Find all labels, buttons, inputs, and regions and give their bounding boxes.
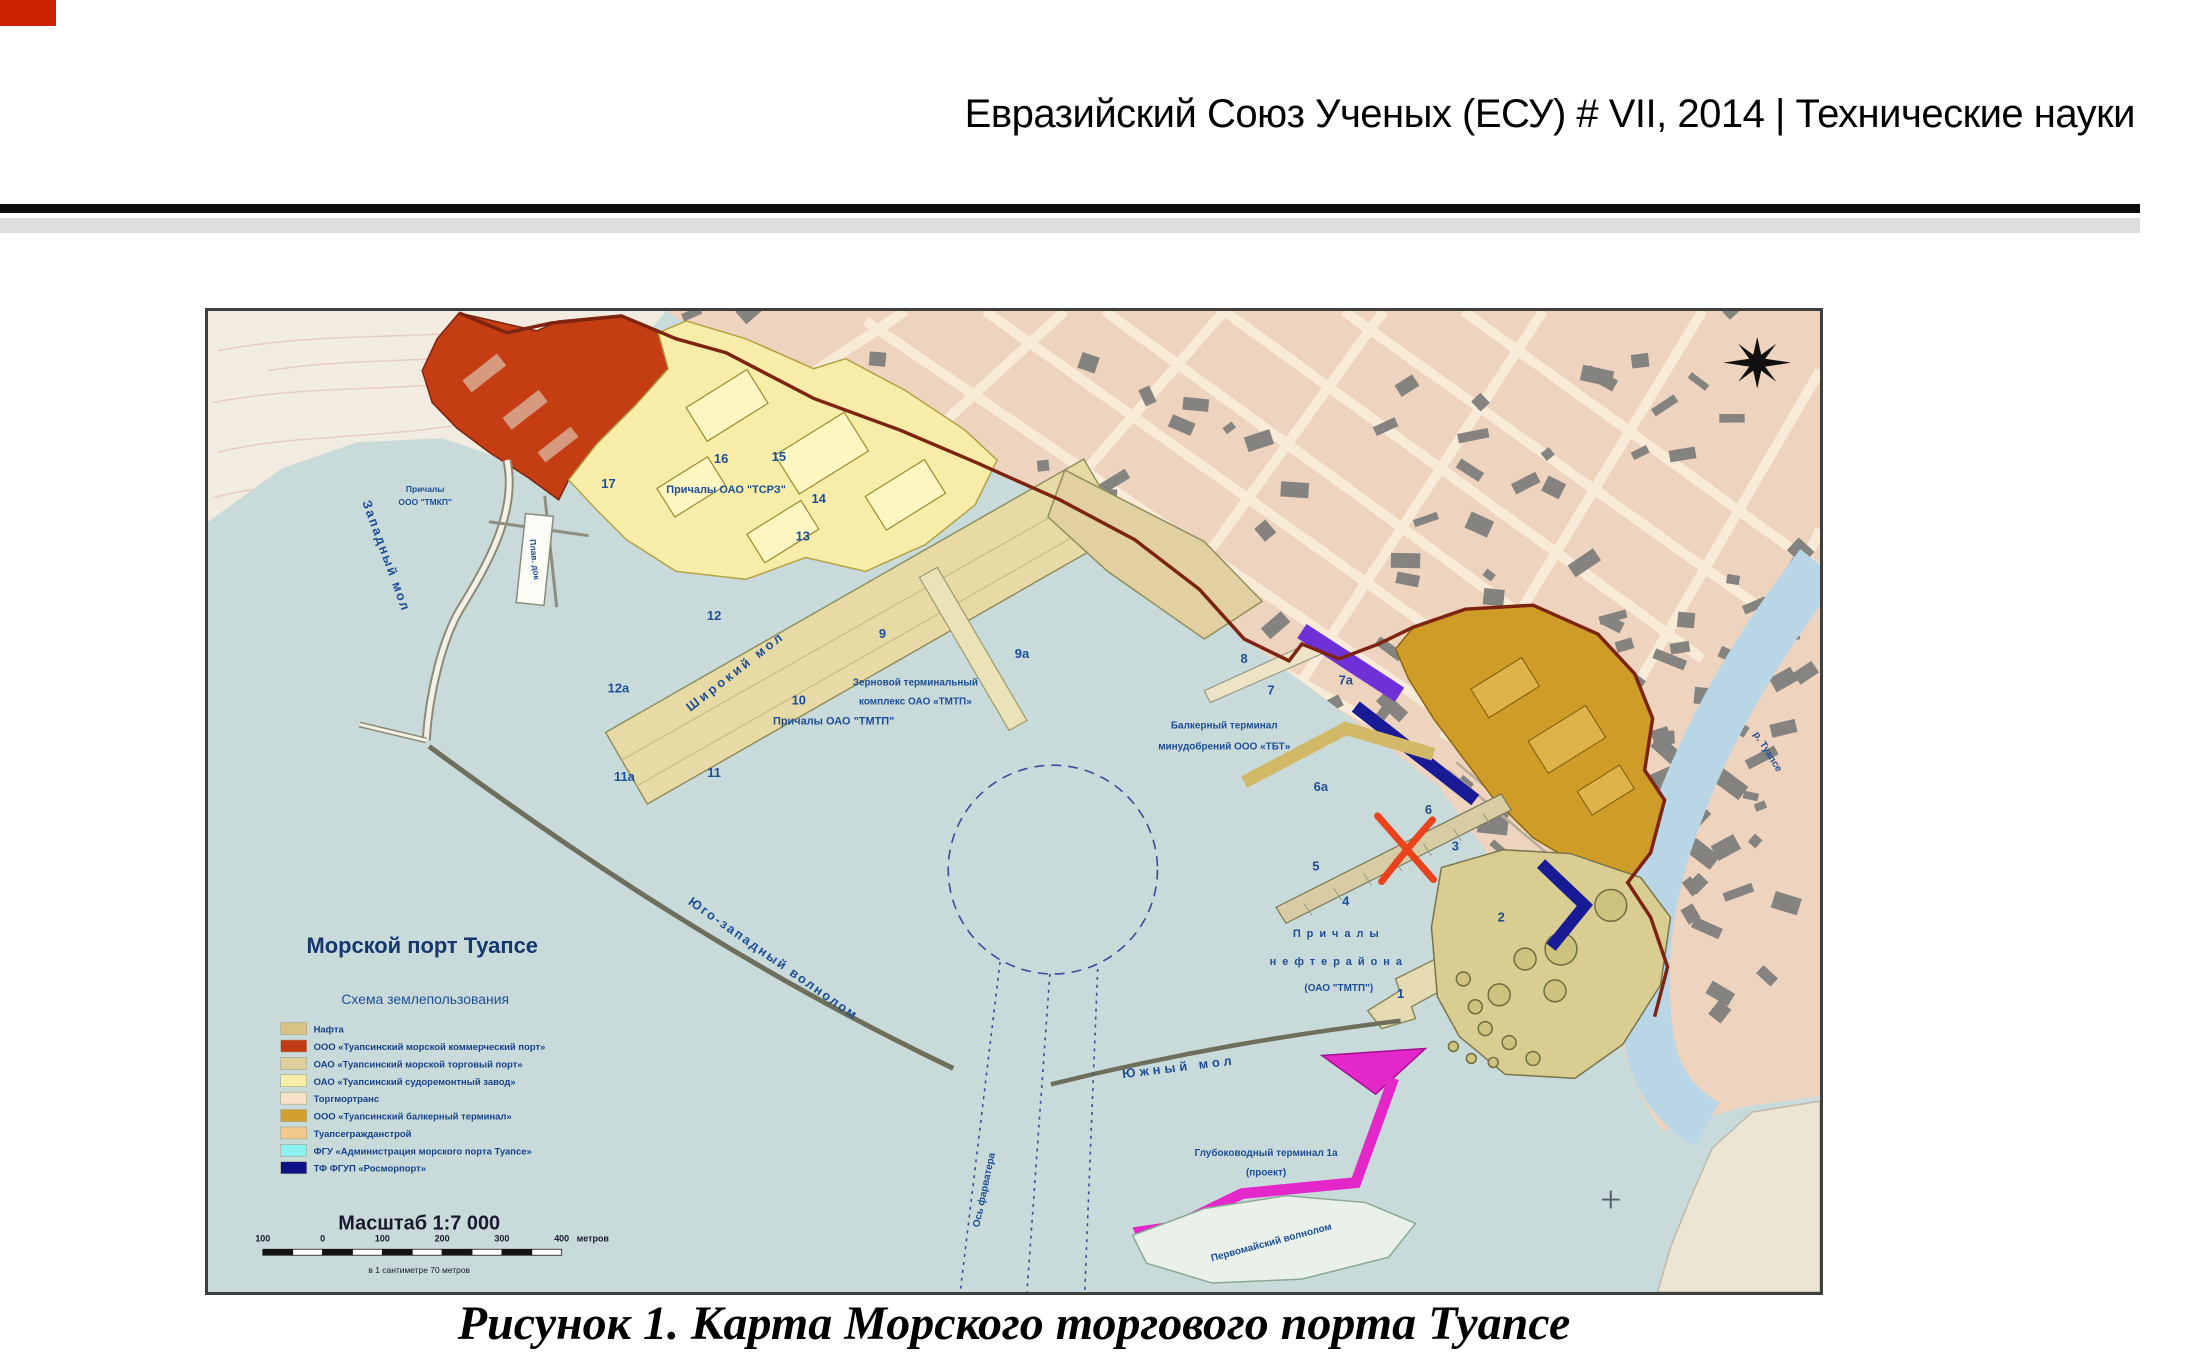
berth-label: 9 bbox=[879, 626, 886, 641]
figure-caption: Рисунок 1. Карта Морского торгового порт… bbox=[205, 1296, 1823, 1351]
berth-label: 16 bbox=[714, 451, 728, 466]
label-tmkp-berths-2: ООО "ТМКП" bbox=[398, 497, 452, 507]
berth-label: 10 bbox=[792, 693, 806, 708]
scale-tick: 100 bbox=[375, 1233, 390, 1243]
berth-label: 12 bbox=[707, 608, 721, 623]
berth-label: 7а bbox=[1339, 673, 1354, 688]
scan-artifact-red-mark bbox=[0, 0, 56, 26]
legend-label: ОАО «Туапсинский судоремонтный завод» bbox=[314, 1077, 516, 1088]
berth-label: 15 bbox=[772, 449, 786, 464]
berth-label: 1 bbox=[1397, 986, 1404, 1001]
legend-swatch bbox=[281, 1040, 307, 1052]
berth-label: 13 bbox=[796, 529, 810, 544]
berth-label: 11а bbox=[614, 769, 636, 784]
berth-label: 12а bbox=[608, 681, 630, 696]
legend-swatch bbox=[281, 1144, 307, 1156]
scale-bar bbox=[263, 1249, 562, 1255]
berth-label: 11 bbox=[707, 765, 721, 780]
label-tmtp-berths: Причалы ОАО "ТМТП" bbox=[773, 715, 894, 727]
label-tsrz-berths: Причалы ОАО "ТСРЗ" bbox=[666, 484, 786, 496]
scale-tick: 0 bbox=[320, 1233, 325, 1243]
legend-swatch bbox=[281, 1023, 307, 1035]
berth-label: 17 bbox=[601, 476, 615, 491]
legend-title: Морской порт Туапсе bbox=[306, 933, 537, 958]
legend-subtitle: Схема землепользования bbox=[341, 991, 509, 1007]
berth-label: 9а bbox=[1015, 646, 1030, 661]
berth-label: 6а bbox=[1314, 779, 1329, 794]
legend-label: ТФ ФГУП «Росморпорт» bbox=[314, 1164, 426, 1175]
legend-swatch bbox=[281, 1162, 307, 1174]
label-bulker-terminal-1: Балкерный терминал bbox=[1171, 720, 1278, 731]
port-map: Западный мол Широкий мол Юго-западный во… bbox=[208, 311, 1820, 1292]
label-tmkp-berths-1: Причалы bbox=[406, 484, 445, 494]
header-rule-shadow bbox=[0, 218, 2140, 233]
berth-label: 6 bbox=[1425, 802, 1432, 817]
label-bulker-terminal-2: минудобрений ООО «ТБТ» bbox=[1158, 741, 1291, 752]
scale-tick: 200 bbox=[435, 1233, 450, 1243]
journal-header: Евразийский Союз Ученых (ЕСУ) # VII, 201… bbox=[965, 92, 2135, 137]
berth-label: 8 bbox=[1241, 651, 1248, 666]
label-oil-berths-1: Причалы bbox=[1293, 928, 1385, 940]
scale-tick: 100 bbox=[255, 1233, 270, 1243]
label-oil-berths-3: (ОАО "ТМТП") bbox=[1304, 983, 1373, 994]
legend-label: ОАО «Туапсинский морской торговый порт» bbox=[314, 1059, 523, 1070]
berth-label: 14 bbox=[812, 491, 827, 506]
label-deepwater-terminal-1: Глубоководный терминал 1а bbox=[1194, 1148, 1338, 1159]
port-map-figure: Западный мол Широкий мол Юго-западный во… bbox=[205, 308, 1823, 1295]
legend-label: Нафта bbox=[314, 1025, 345, 1036]
berth-label: 2 bbox=[1498, 909, 1505, 924]
legend-label: Туапсегражданстрой bbox=[314, 1129, 412, 1140]
label-grain-terminal-2: комплекс ОАО «ТМТП» bbox=[859, 697, 972, 708]
legend-label: ООО «Туапсинский балкерный терминал» bbox=[314, 1112, 512, 1123]
legend-swatch bbox=[281, 1110, 307, 1122]
legend-swatch bbox=[281, 1057, 307, 1069]
legend-label: Торгмортранс bbox=[314, 1094, 380, 1105]
scale-tick: 400 bbox=[554, 1233, 569, 1243]
label-oil-berths-2: нефтерайона bbox=[1270, 956, 1408, 968]
scale-note: в 1 сантиметре 70 метров bbox=[368, 1265, 470, 1275]
label-deepwater-terminal-2: (проект) bbox=[1246, 1168, 1286, 1179]
scale-tick: 300 bbox=[494, 1233, 509, 1243]
scale-title: Масштаб 1:7 000 bbox=[338, 1212, 500, 1234]
legend-label: ООО «Туапсинский морской коммерческий по… bbox=[314, 1042, 546, 1053]
legend-swatch bbox=[281, 1092, 307, 1104]
berth-label: 4 bbox=[1342, 893, 1350, 908]
legend-swatch bbox=[281, 1127, 307, 1139]
berth-label: 7 bbox=[1267, 683, 1274, 698]
berth-label: 5 bbox=[1312, 859, 1319, 874]
legend-label: ФГУ «Администрация морского порта Туапсе… bbox=[314, 1146, 532, 1157]
berth-label: 3 bbox=[1452, 839, 1459, 854]
scale-unit: метров bbox=[577, 1233, 610, 1243]
label-grain-terminal-1: Зерновой терминальный bbox=[853, 678, 978, 689]
legend-swatch bbox=[281, 1075, 307, 1087]
header-rule bbox=[0, 204, 2140, 213]
